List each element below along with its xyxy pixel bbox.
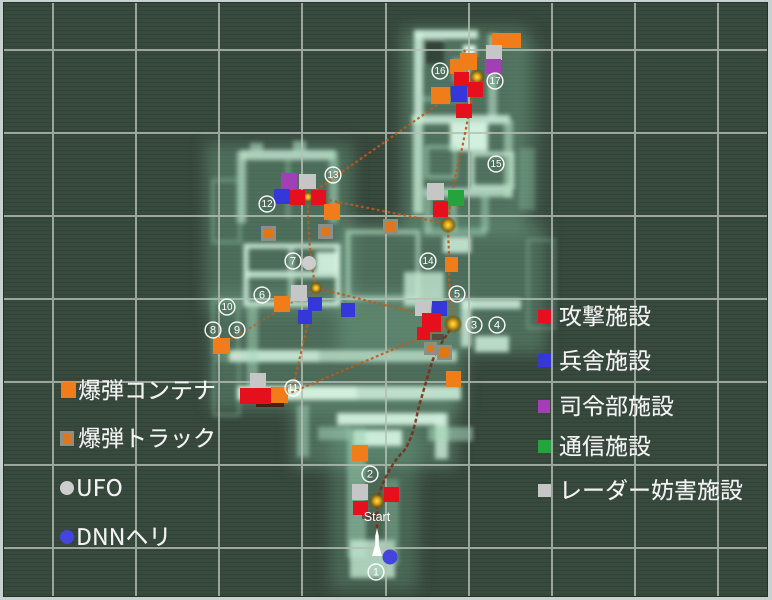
svg-text:1: 1 xyxy=(373,567,379,579)
svg-text:2: 2 xyxy=(367,469,373,481)
svg-text:16: 16 xyxy=(434,66,446,77)
svg-text:14: 14 xyxy=(422,256,434,267)
svg-text:10: 10 xyxy=(221,302,233,313)
svg-text:15: 15 xyxy=(490,159,502,170)
svg-text:13: 13 xyxy=(327,170,339,181)
svg-text:11: 11 xyxy=(288,383,299,394)
svg-text:4: 4 xyxy=(494,320,500,332)
svg-text:9: 9 xyxy=(234,325,240,337)
svg-text:5: 5 xyxy=(454,289,460,301)
svg-text:6: 6 xyxy=(259,290,265,302)
svg-text:8: 8 xyxy=(210,325,216,337)
svg-text:3: 3 xyxy=(471,320,477,332)
svg-text:12: 12 xyxy=(261,199,273,210)
svg-text:17: 17 xyxy=(489,76,501,87)
svg-text:7: 7 xyxy=(290,256,296,268)
svg-text:Start: Start xyxy=(364,510,391,524)
